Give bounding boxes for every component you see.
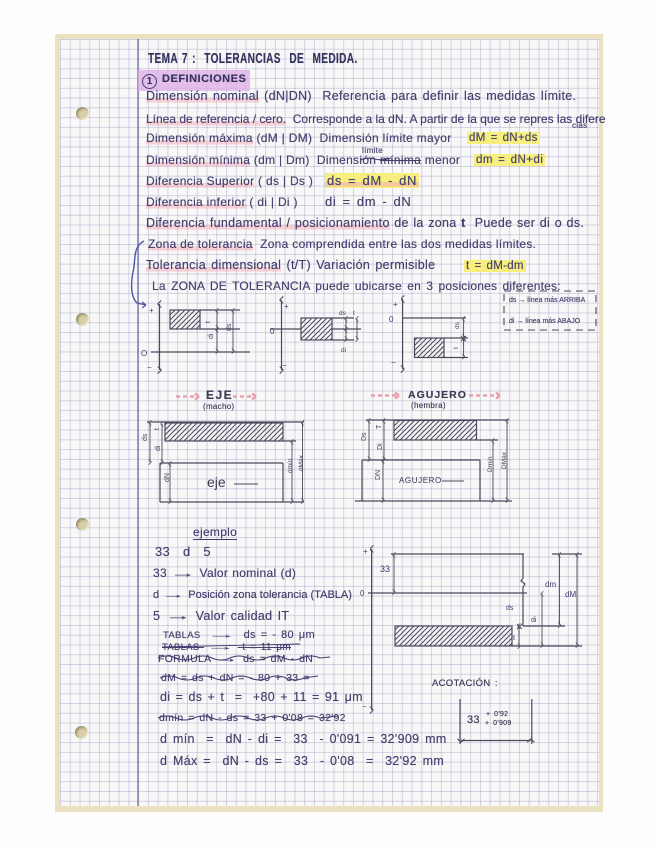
svg-text:0: 0 (360, 589, 365, 598)
svg-text:t: t (353, 310, 355, 317)
svg-text:dmín: dmín (287, 458, 294, 473)
svg-text:+: + (284, 302, 289, 311)
svg-text:0: 0 (389, 315, 394, 324)
svg-text:ds: ds (506, 605, 514, 612)
svg-text:dMáx: dMáx (298, 454, 305, 471)
svg-text:ds: ds (142, 433, 149, 441)
svg-text:t: t (154, 428, 161, 430)
svg-text:dN: dN (164, 473, 171, 482)
svg-text:ds: ds (339, 310, 347, 317)
svg-text:Dmín: Dmín (487, 456, 494, 472)
svg-text:+: + (393, 300, 398, 309)
svg-text:−: − (362, 702, 367, 711)
svg-text:ds: ds (454, 321, 461, 329)
svg-text:di: di (341, 347, 346, 354)
svg-text:33: 33 (380, 564, 390, 574)
svg-text:T: T (376, 424, 383, 429)
svg-text:t: t (205, 321, 212, 323)
svg-text:DN: DN (375, 470, 382, 480)
svg-text:t: t (513, 635, 515, 642)
svg-text:−: − (147, 363, 152, 372)
svg-text:di: di (208, 333, 215, 339)
svg-text:+: + (149, 306, 154, 315)
svg-text:t: t (453, 347, 460, 349)
svg-text:−: − (282, 361, 287, 370)
svg-text:DMáx: DMáx (501, 451, 508, 469)
svg-text:eje: eje (207, 474, 226, 490)
svg-text:+: + (363, 547, 368, 556)
svg-text:dM: dM (565, 590, 576, 599)
svg-text:di: di (155, 445, 162, 451)
svg-text:di: di (531, 617, 537, 624)
svg-text:0: 0 (270, 327, 275, 336)
svg-text:O: O (141, 349, 147, 358)
svg-text:−: − (391, 358, 396, 367)
svg-text:ds: ds (226, 323, 233, 331)
svg-text:Di: Di (377, 443, 384, 450)
svg-text:Ds: Ds (361, 432, 368, 441)
svg-text:dm: dm (545, 580, 556, 589)
svg-text:AGUJERO: AGUJERO (399, 476, 442, 485)
